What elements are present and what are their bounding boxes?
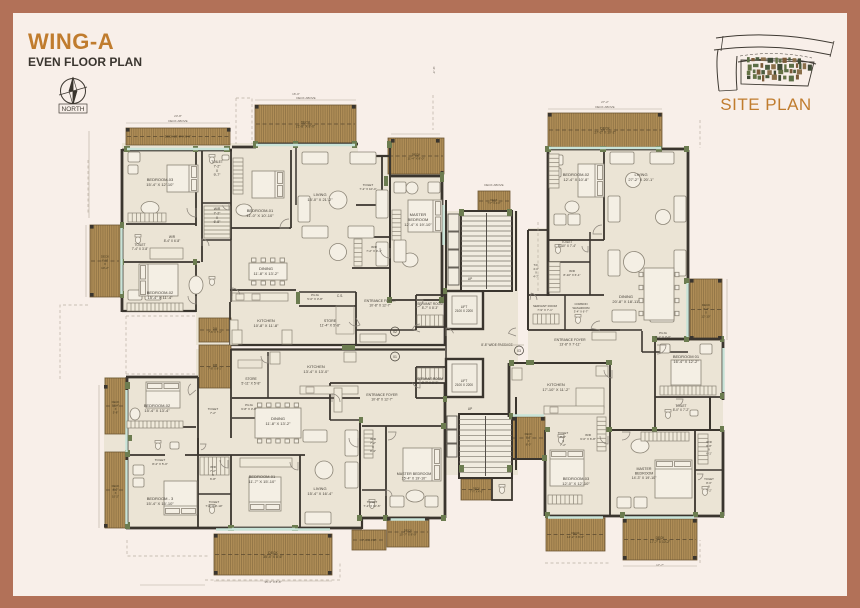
svg-text:DECK ABOVE: DECK ABOVE [296,96,315,100]
svg-text:15'-4" X 12'-10": 15'-4" X 12'-10" [146,182,174,187]
svg-text:15'-4" X 13'-4": 15'-4" X 13'-4" [144,408,170,413]
svg-text:27'-2" X 10'-2": 27'-2" X 10'-2" [594,131,616,135]
svg-text:EVEN FLOOR PLAN: EVEN FLOOR PLAN [28,55,142,69]
svg-text:35'-4" X 8'-6": 35'-4" X 8'-6" [264,580,281,584]
svg-text:5'-11" X 5'-8": 5'-11" X 5'-8" [241,381,261,385]
svg-text:8'-10" X 7'-4": 8'-10" X 7'-4" [558,244,576,248]
svg-text:11'-7" X 15'-10": 11'-7" X 15'-10" [248,479,276,484]
svg-text:7'-2": 7'-2" [706,488,712,492]
svg-text:23'-8": 23'-8" [174,114,182,118]
svg-text:8'-7" X 8'-3": 8'-7" X 8'-3" [422,306,439,310]
svg-text:14'-3" X 19'-10": 14'-3" X 19'-10" [632,476,657,480]
svg-text:8'-0" X 7'-2": 8'-0" X 7'-2" [673,408,690,412]
svg-text:15'-4" X 19'-10": 15'-4" X 19'-10" [402,477,427,481]
svg-text:7'-2": 7'-2" [214,211,222,215]
svg-text:6'-8" X 3'-8": 6'-8" X 3'-8" [241,407,257,411]
svg-text:17'-7" X 10'-2": 17'-7" X 10'-2" [650,540,670,544]
svg-text:7'-6" X 7'-1": 7'-6" X 7'-1" [208,330,222,334]
svg-text:D.B: D.B [213,363,218,367]
svg-text:10'-8" X 12'-7": 10'-8" X 12'-7" [369,303,391,307]
svg-text:12'-0" X 12'-10": 12'-0" X 12'-10" [562,481,590,486]
svg-text:01: 01 [393,355,397,359]
svg-text:7'-7" X 4'-0": 7'-7" X 4'-0" [470,491,483,494]
svg-text:NORTH: NORTH [62,106,85,113]
svg-text:2100 X 2200: 2100 X 2200 [455,309,473,313]
svg-text:TOILET: TOILET [211,160,223,164]
svg-text:3'-4" X 6'-7": 3'-4" X 6'-7" [574,310,589,314]
svg-text:7'-2": 7'-2" [214,164,222,168]
svg-text:8'-4" X 6'-8": 8'-4" X 6'-8" [164,239,181,243]
svg-text:7'-8" X 8'-1": 7'-8" X 8'-1" [208,367,222,371]
svg-text:SITE PLAN: SITE PLAN [720,95,811,114]
svg-text:21'-8" X 8'-0": 21'-8" X 8'-0" [296,125,316,129]
svg-text:11'-4" X 8'-0": 11'-4" X 8'-0" [407,156,424,160]
svg-text:STORE: STORE [324,319,337,323]
svg-text:ENTRANCE FOYER: ENTRANCE FOYER [366,393,398,397]
svg-text:27'-2" X 20'-1": 27'-2" X 20'-1" [628,177,654,182]
svg-text:5'-8": 5'-8" [113,411,119,415]
svg-text:15'-4" X 16'-4": 15'-4" X 16'-4" [307,491,333,496]
svg-text:W/R: W/R [214,207,221,211]
svg-text:13'-4" X 13'-0": 13'-4" X 13'-0" [303,369,329,374]
svg-text:8'-4" X 5'-0": 8'-4" X 5'-0" [152,462,168,466]
svg-text:DECK 23'-8" X 5'-8": DECK 23'-8" X 5'-8" [165,135,191,139]
svg-text:15'-4" X 15'-10": 15'-4" X 15'-10" [146,501,174,506]
svg-text:10'-2": 10'-2" [101,266,109,270]
svg-text:16'-4" X 12'-2": 16'-4" X 12'-2" [673,359,699,364]
svg-text:14'-2" X 8'-6": 14'-2" X 8'-6" [567,535,584,539]
svg-text:DECK ABOVE: DECK ABOVE [168,119,187,123]
svg-text:6'-1": 6'-1" [706,451,712,455]
svg-text:7'-4" X 4'-0": 7'-4" X 4'-0" [362,538,376,542]
svg-text:BEDROOM: BEDROOM [635,472,654,476]
svg-text:16'-0": 16'-0" [292,92,300,96]
svg-text:13'-8" X 7'-11": 13'-8" X 7'-11" [559,342,581,346]
svg-text:C.S.: C.S. [337,294,343,298]
svg-text:15'-0" X 21'-2": 15'-0" X 21'-2" [307,197,333,202]
svg-text:UP: UP [468,277,472,281]
svg-text:UP: UP [468,407,472,411]
svg-text:11'-4": 11'-4" [432,66,436,73]
svg-text:6'-8": 6'-8" [210,477,216,481]
svg-text:20'-8" X 18'-11": 20'-8" X 18'-11" [612,299,640,304]
svg-text:ENTRANCE FOYER: ENTRANCE FOYER [364,299,396,303]
svg-text:DECK ABOVE: DECK ABOVE [595,105,614,109]
svg-text:5'-0" X 3'-8": 5'-0" X 3'-8" [307,297,323,301]
svg-text:12'-4" X 10'-8": 12'-4" X 10'-8" [563,177,589,182]
svg-text:7'-2" X 10'-4": 7'-2" X 10'-4" [359,187,376,191]
svg-text:6'-1" X 3'-0": 6'-1" X 3'-0" [655,335,671,339]
svg-text:15'-7" X 8'-9": 15'-7" X 8'-9" [399,532,416,536]
svg-text:12'-4" X 19'-10": 12'-4" X 19'-10" [404,222,432,227]
svg-text:17'-7": 17'-7" [656,563,664,567]
svg-text:11'-0" X 10'-10": 11'-0" X 10'-10" [246,213,274,218]
svg-text:8'-10" X 6'-1": 8'-10" X 6'-1" [563,273,580,277]
svg-text:7'-2": 7'-2" [560,443,566,447]
svg-text:DECK ABOVE: DECK ABOVE [484,183,503,187]
svg-text:9'-7": 9'-7" [214,173,222,177]
svg-text:11'-4" X 5'-8": 11'-4" X 5'-8" [320,324,341,328]
svg-text:27'-2": 27'-2" [601,100,609,104]
svg-text:11'-8" X 13'-2": 11'-8" X 13'-2" [254,271,280,276]
svg-text:D.B: D.B [213,327,218,331]
svg-text:02: 02 [393,330,397,334]
svg-text:9'-4": 9'-4" [370,449,376,453]
svg-text:WING-A: WING-A [28,29,114,54]
svg-text:8'-0": 8'-0" [526,443,532,447]
svg-text:6'-8": 6'-8" [214,220,222,224]
svg-text:STORE: STORE [245,377,257,381]
svg-text:7'-7" X 4'-0": 7'-7" X 4'-0" [487,202,500,205]
svg-text:15'-4" X 11'-4": 15'-4" X 11'-4" [148,295,174,300]
svg-text:7'-9" X 7'-1": 7'-9" X 7'-1" [537,308,553,312]
svg-text:7'-2": 7'-2" [210,411,216,415]
svg-text:11'-8" X 13'-2": 11'-8" X 13'-2" [266,421,292,426]
svg-text:17'-10" X 11'-2": 17'-10" X 11'-2" [542,387,570,392]
svg-text:ENTRANCE FOYER: ENTRANCE FOYER [554,338,586,342]
svg-text:10'-2": 10'-2" [112,495,119,499]
svg-text:35'-4" X 8'-6": 35'-4" X 8'-6" [263,555,283,559]
svg-text:7'-2" X 10'-6": 7'-2" X 10'-6" [363,504,380,508]
svg-text:MASTER BEDROOM: MASTER BEDROOM [397,472,432,476]
svg-text:7'-2" X 3'-10": 7'-2" X 3'-10" [205,504,222,508]
svg-text:10'-8" X 11'-8": 10'-8" X 11'-8" [254,323,280,328]
svg-text:8'-7" X 8'-3": 8'-7" X 8'-3" [422,381,439,385]
svg-text:2100 X 2200: 2100 X 2200 [455,383,473,387]
svg-text:10'-8" X 12'-7": 10'-8" X 12'-7" [371,397,393,401]
svg-text:12'-10": 12'-10" [701,314,710,318]
svg-text:7'-4" X 3'-8": 7'-4" X 3'-8" [132,247,149,251]
svg-text:7'-2" X 9'-4": 7'-2" X 9'-4" [366,249,382,253]
svg-text:03: 03 [517,349,521,353]
svg-text:6'-0" X 6'-8": 6'-0" X 6'-8" [580,437,596,441]
svg-text:MASTER: MASTER [637,467,652,471]
